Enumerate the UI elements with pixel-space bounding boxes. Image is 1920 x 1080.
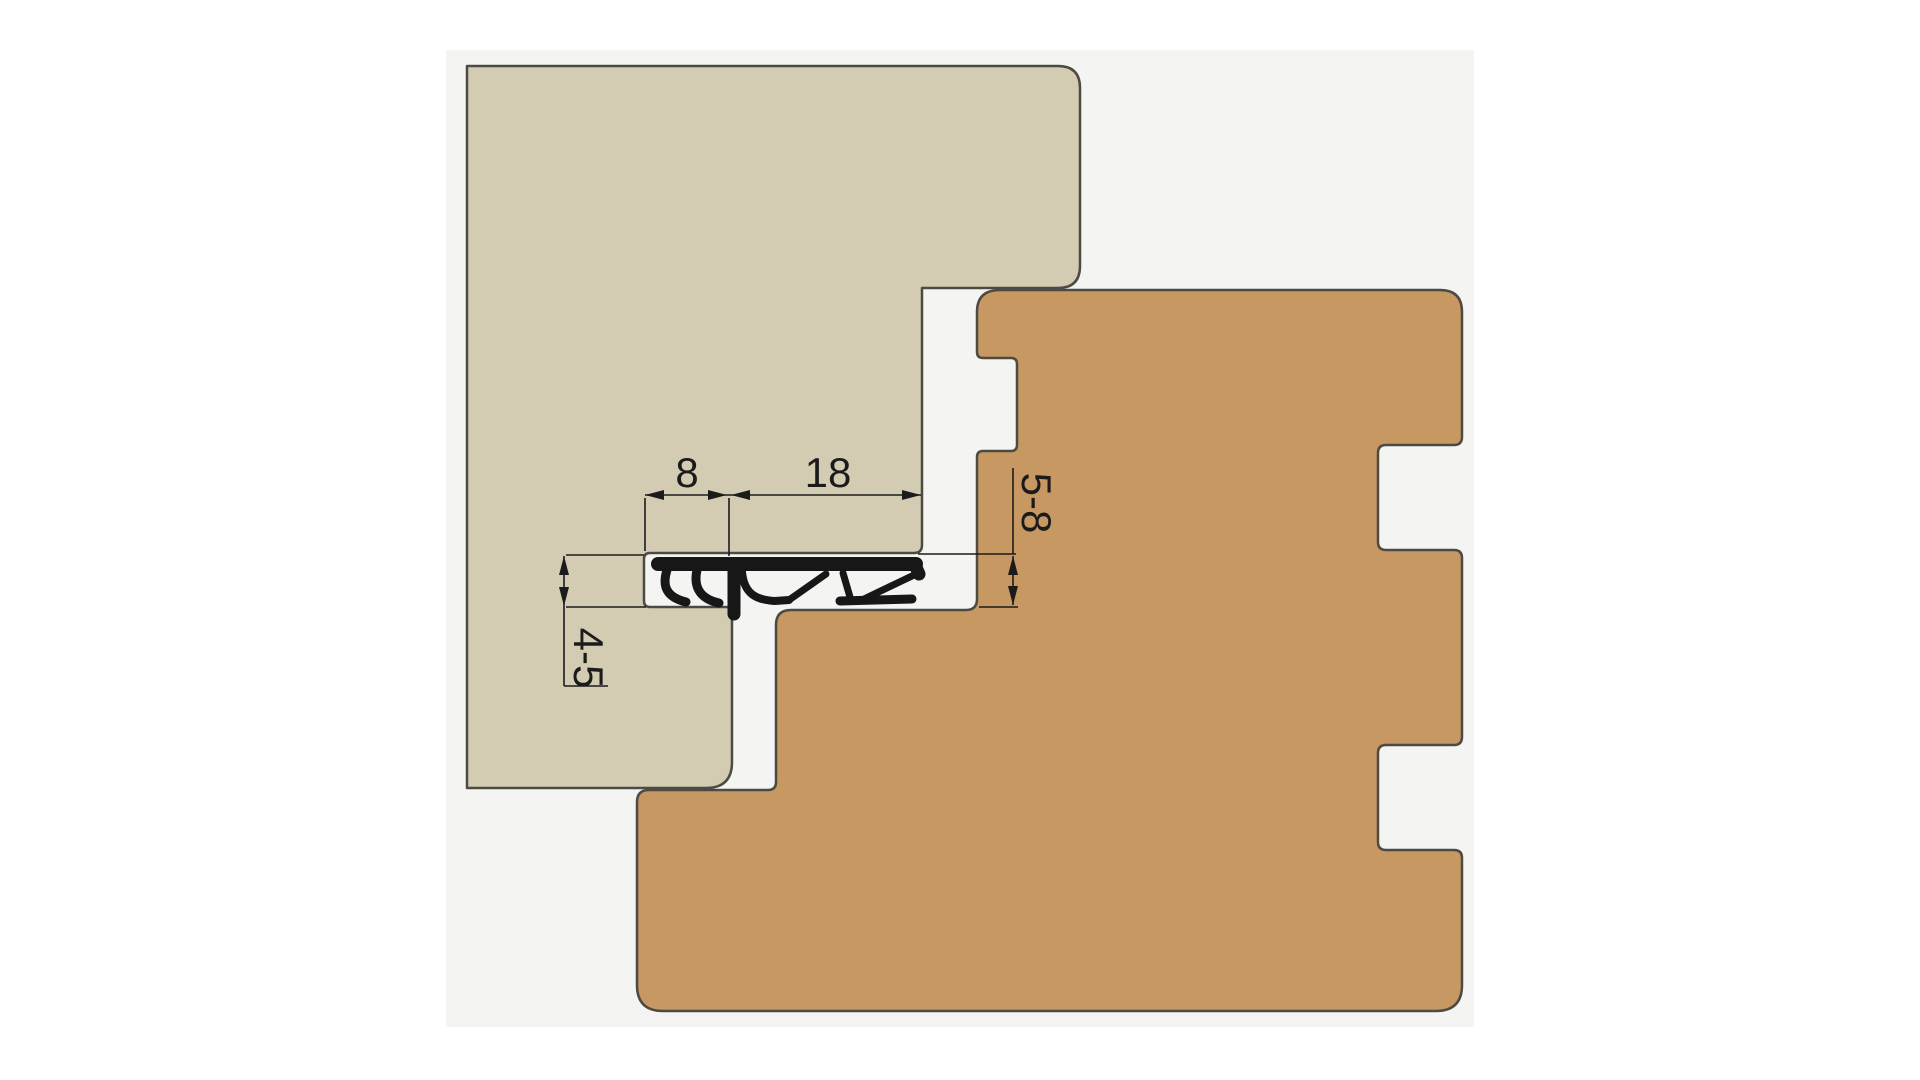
dim-label-groove-lip-width: 8 [675,449,698,496]
technical-drawing-page: 8 18 4-5 5-8 [0,0,1920,1080]
dim-label-seal-width: 18 [805,449,852,496]
seal-right-end [915,565,919,574]
seal-cross-section-diagram: 8 18 4-5 5-8 [0,0,1920,1080]
seal-right-foot [840,599,912,601]
dim-label-door-rebate-gap: 5-8 [1013,473,1060,534]
dim-label-frame-gap: 4-5 [565,628,612,689]
